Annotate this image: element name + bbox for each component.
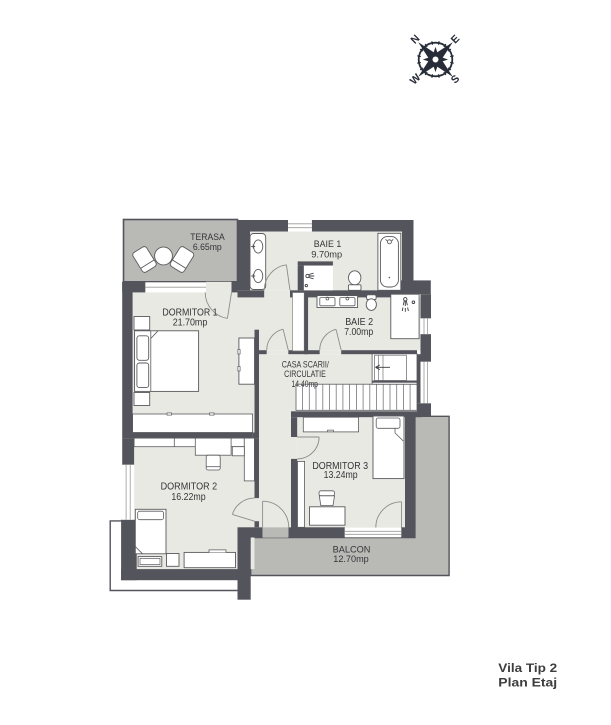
svg-text:7.00mp: 7.00mp [344, 327, 373, 338]
svg-text:CASA SCARII/: CASA SCARII/ [282, 359, 330, 369]
svg-text:12.70mp: 12.70mp [333, 554, 369, 565]
svg-text:14.40mp: 14.40mp [292, 379, 318, 389]
svg-text:Plan Etaj: Plan Etaj [498, 675, 557, 689]
svg-text:9.70mp: 9.70mp [311, 250, 342, 261]
svg-text:6.65mp: 6.65mp [193, 242, 222, 253]
svg-text:CIRCULATIE: CIRCULATIE [284, 369, 326, 379]
svg-text:16.22mp: 16.22mp [171, 492, 206, 503]
svg-text:21.70mp: 21.70mp [173, 318, 208, 329]
svg-text:13.24mp: 13.24mp [324, 470, 358, 481]
svg-text:DORMITOR 2: DORMITOR 2 [161, 482, 218, 493]
svg-text:Vila Tip 2: Vila Tip 2 [498, 661, 557, 675]
